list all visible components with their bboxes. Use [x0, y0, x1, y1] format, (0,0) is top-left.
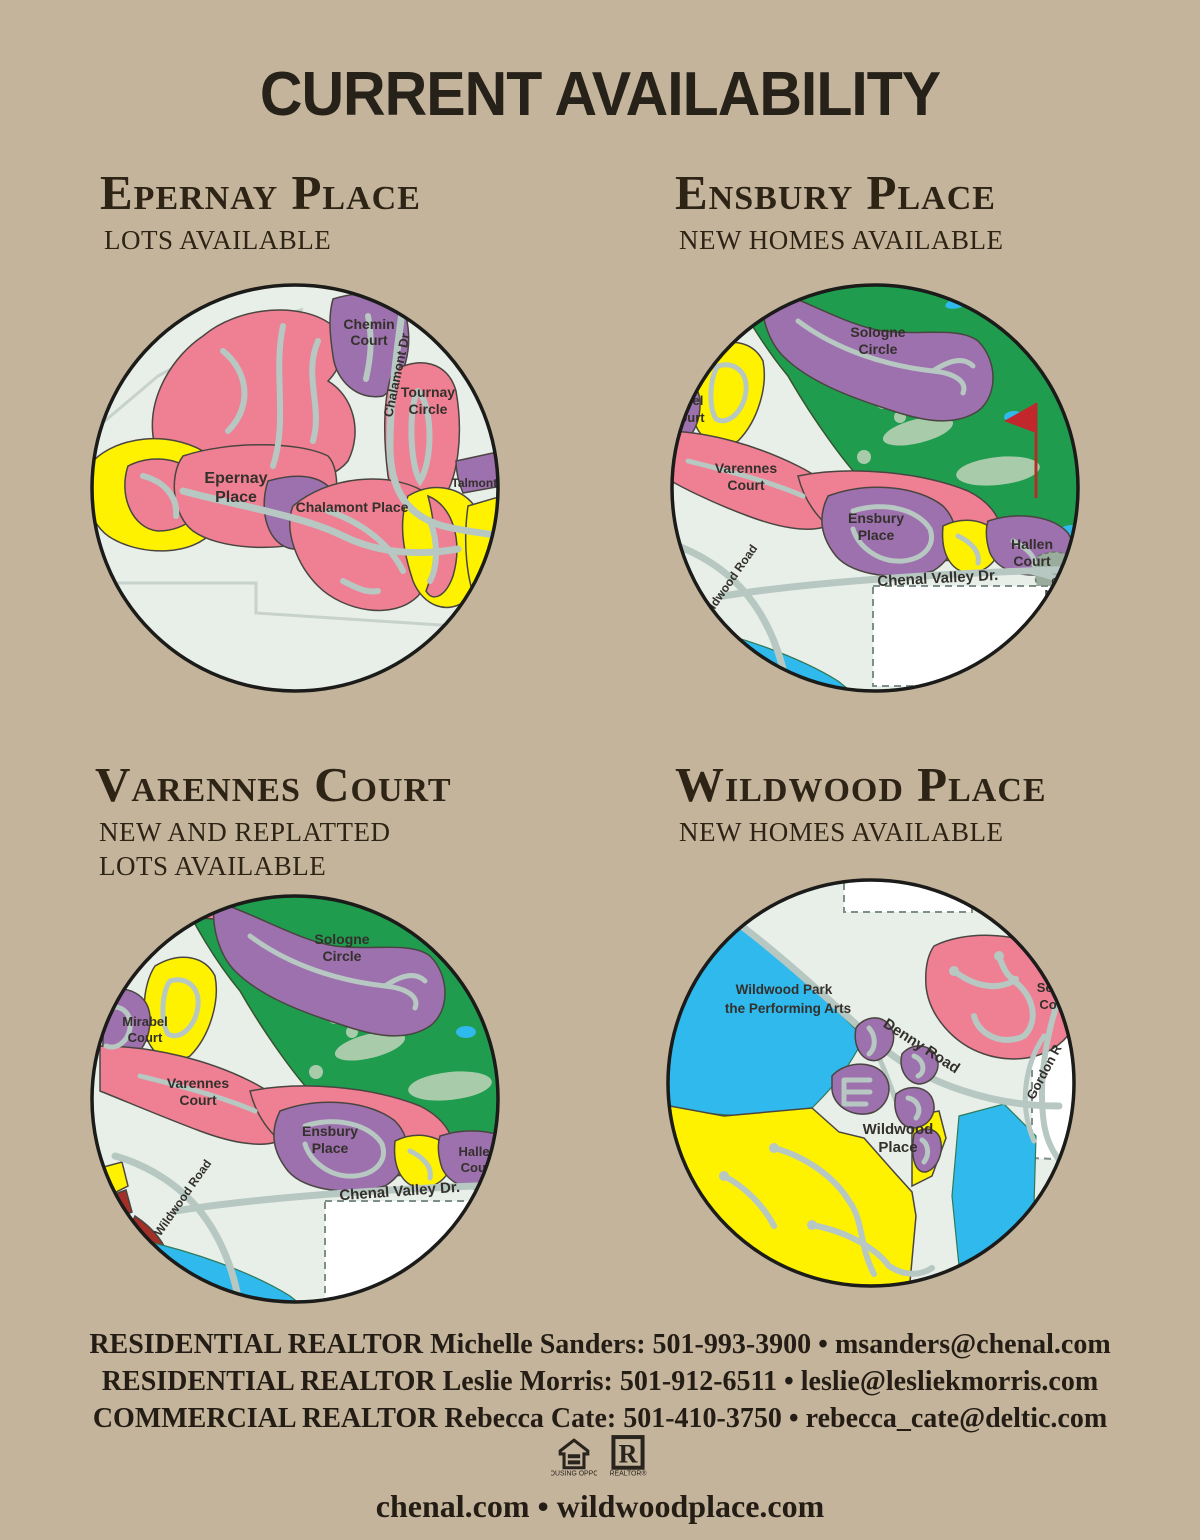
subheading-epernay-place: LOTS AVAILABLE [104, 224, 331, 258]
label-sologne-circle: Sologne [314, 931, 369, 947]
footer-icons: EQUAL HOUSING OPPORTUNITY R REALTOR® [0, 1434, 1200, 1480]
label-hallen-court: Hallen [1011, 536, 1053, 552]
equal-housing-icon: EQUAL HOUSING OPPORTUNITY [551, 1434, 597, 1480]
subheading-ensbury-place: NEW HOMES AVAILABLE [679, 224, 1004, 258]
svg-text:Place: Place [312, 1140, 349, 1156]
contact-line-residential-1: RESIDENTIAL REALTOR Michelle Sanders: 50… [0, 1326, 1200, 1363]
contact-line-commercial: COMMERCIAL REALTOR Rebecca Cate: 501-410… [0, 1400, 1200, 1437]
label-tournay-circle: Tournay [401, 384, 455, 400]
heading-varennes-court: Varennes Court [95, 760, 452, 809]
subheading-wildwood-place: NEW HOMES AVAILABLE [679, 816, 1004, 850]
svg-text:Court: Court [350, 332, 388, 348]
label-epernay-place: Epernay [204, 470, 267, 487]
ensbury-map: Sologne Circle bel ourt Varennes Court E… [668, 281, 1082, 695]
wildwood-map: Wildwood Park the Performing Arts Denny … [664, 876, 1078, 1290]
svg-text:Place: Place [858, 527, 895, 543]
label-wildwood-park: Wildwood Park [736, 982, 833, 997]
heading-wildwood-place: Wildwood Place [675, 760, 1047, 809]
label-varennes-court: Varennes [715, 460, 777, 476]
svg-text:EQUAL HOUSING OPPORTUNITY: EQUAL HOUSING OPPORTUNITY [551, 1470, 597, 1477]
contact-block: RESIDENTIAL REALTOR Michelle Sanders: 50… [0, 1326, 1200, 1438]
websites-line: chenal.com • wildwoodplace.com [0, 1488, 1200, 1525]
label-wildwood-place: Wildwood [863, 1121, 934, 1138]
heading-epernay-place: Epernay Place [100, 168, 421, 217]
svg-text:Place: Place [878, 1139, 917, 1156]
svg-text:Court: Court [179, 1092, 217, 1108]
svg-text:Circle: Circle [859, 341, 898, 357]
heading-ensbury-place: Ensbury Place [675, 168, 996, 217]
epernay-map: Chemin Court Tournay Circle Chalamont Dr… [88, 281, 502, 695]
label-sologne-circle: Sologne [850, 324, 905, 340]
svg-text:Court: Court [461, 1160, 496, 1175]
label-talmont: Talmont P [451, 476, 502, 490]
contact-line-residential-2: RESIDENTIAL REALTOR Leslie Morris: 501-9… [0, 1363, 1200, 1400]
label-mirabel-court: Mirabel [122, 1014, 168, 1029]
svg-text:the Performing Arts: the Performing Arts [725, 1001, 851, 1016]
label-chemin-court: Chemin [343, 316, 394, 332]
svg-text:REALTOR®: REALTOR® [610, 1469, 647, 1477]
page-title: CURRENT AVAILABILITY [0, 58, 1200, 130]
varennes-map: Sologne Circle Mirabel Court Varennes Co… [88, 892, 502, 1306]
svg-text:Court: Court [128, 1030, 163, 1045]
svg-text:Court: Court [727, 477, 765, 493]
water-area-southeast [952, 1104, 1036, 1266]
subheading-varennes-court: NEW AND REPLATTED LOTS AVAILABLE [99, 816, 459, 884]
label-chalamont-place: Chalamont Place [296, 499, 409, 515]
svg-text:Circle: Circle [323, 948, 362, 964]
svg-text:Circle: Circle [409, 401, 448, 417]
realtor-icon: R REALTOR® [607, 1434, 649, 1480]
svg-text:Place: Place [215, 489, 257, 506]
svg-text:R: R [619, 1439, 639, 1468]
label-ensbury-place: Ensbury [302, 1123, 358, 1139]
svg-text:F: F [1057, 601, 1063, 612]
flyer-page: CURRENT AVAILABILITY Epernay Place LOTS … [0, 0, 1200, 1540]
label-ensbury-place: Ensbury [848, 510, 904, 526]
label-varennes-court: Varennes [167, 1075, 229, 1091]
svg-text:Court: Court [1013, 553, 1051, 569]
